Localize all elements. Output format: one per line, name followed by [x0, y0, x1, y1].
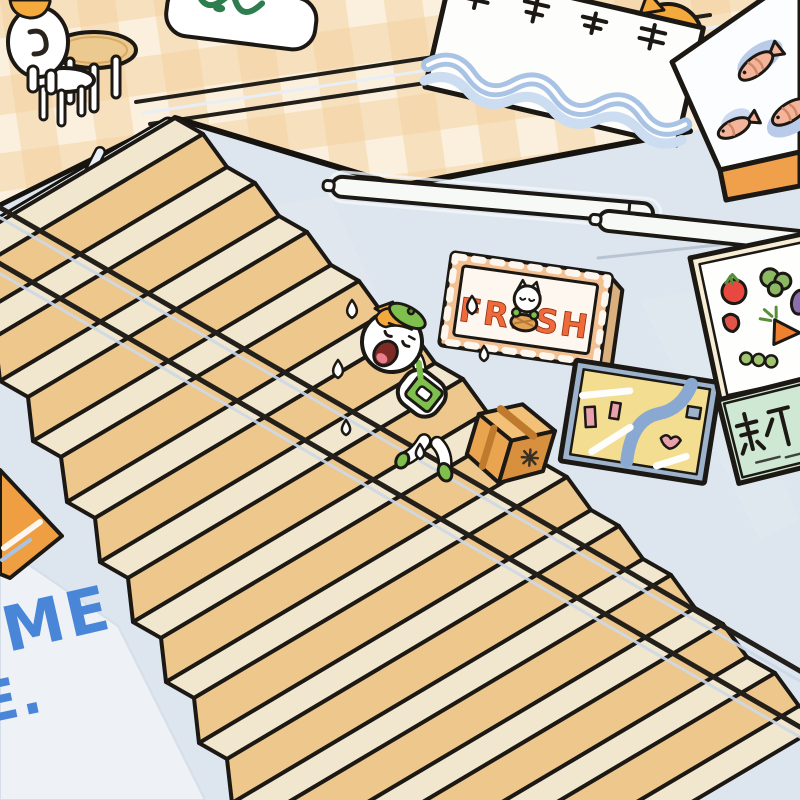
sticker-sheet-photo: 海鮮: [0, 0, 800, 800]
map-landmark: [609, 402, 620, 419]
map-landmark: [686, 406, 701, 419]
pea: [764, 354, 778, 368]
table-leg: [112, 56, 120, 98]
broccoli: [767, 281, 784, 298]
stool-leg: [58, 90, 65, 126]
cap-button: [407, 307, 415, 315]
map-poster: [560, 360, 720, 484]
pea: [752, 353, 766, 367]
map-landmark: [585, 407, 596, 427]
pea: [739, 351, 753, 365]
stool-leg: [78, 86, 85, 116]
table-leg: [90, 64, 98, 112]
illustration-scene: 海鮮: [0, 0, 800, 800]
sitting-cat-leg: [46, 70, 56, 94]
sitting-cat-leg: [28, 66, 38, 92]
